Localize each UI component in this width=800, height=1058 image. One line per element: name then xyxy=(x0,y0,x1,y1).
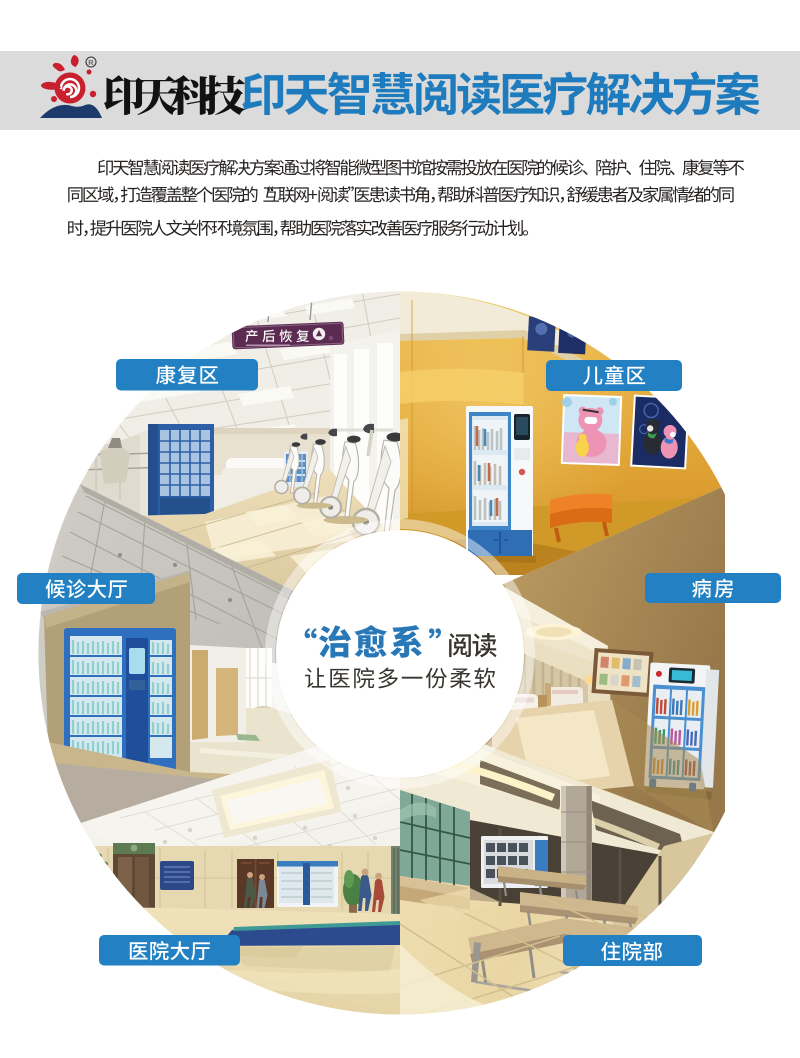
svg-text:R: R xyxy=(88,58,94,67)
